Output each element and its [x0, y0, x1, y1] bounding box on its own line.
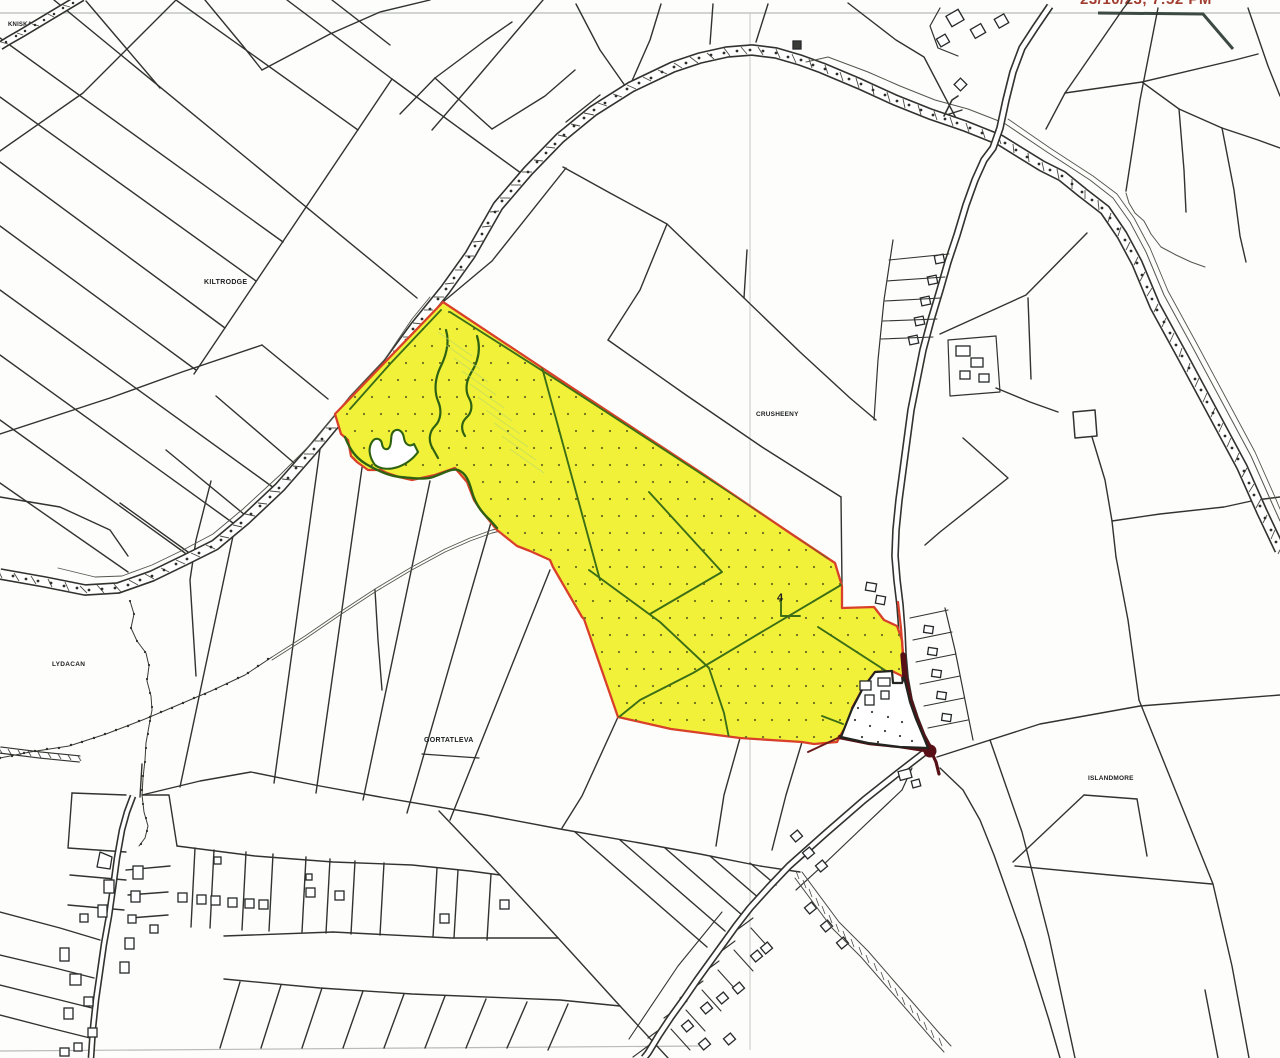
svg-text:CRUSHEENY: CRUSHEENY: [756, 411, 799, 418]
svg-text:23/10/23, 7:52 PM: 23/10/23, 7:52 PM: [1080, 0, 1212, 8]
svg-text:4: 4: [777, 592, 784, 604]
svg-text:LYDACAN: LYDACAN: [52, 661, 85, 668]
svg-text:ISLANDMORE: ISLANDMORE: [1088, 775, 1134, 782]
svg-text:GORTATLEVA: GORTATLEVA: [424, 737, 474, 744]
svg-text:KILTRODGE: KILTRODGE: [204, 279, 247, 286]
